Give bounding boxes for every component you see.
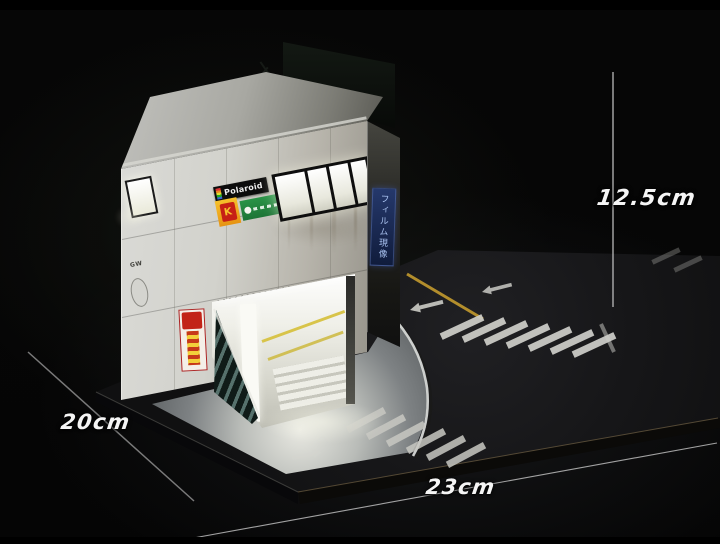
depth-dimension-label: 20cm bbox=[59, 410, 132, 434]
letterbox-top bbox=[0, 0, 720, 10]
dimension-lines bbox=[0, 0, 720, 544]
letterbox-bottom bbox=[0, 537, 720, 544]
screenshot-root: フィルム現像 Polaroid K GW bbox=[0, 0, 720, 544]
width-dimension-label: 23cm bbox=[424, 475, 497, 499]
height-dimension-label: 12.5cm bbox=[595, 186, 698, 211]
